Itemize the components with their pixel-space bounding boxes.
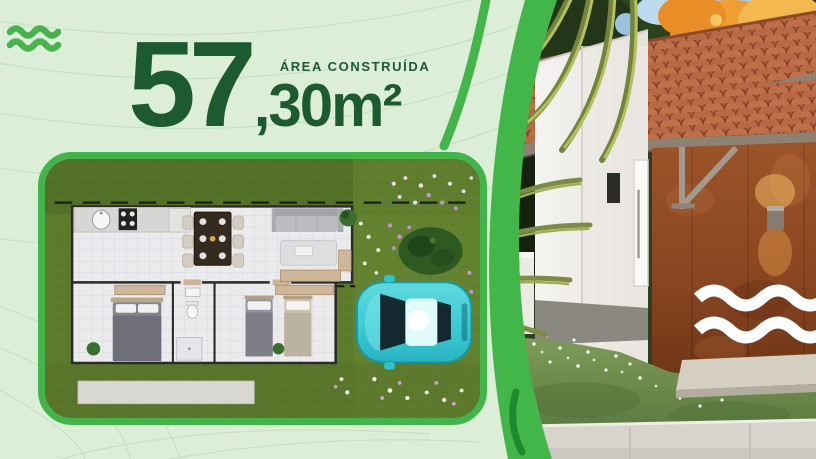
- kitchen: [74, 207, 190, 232]
- floor-plan: [45, 159, 480, 418]
- plant: [340, 209, 357, 226]
- garden-bush: [399, 227, 463, 274]
- rust-wall: [652, 142, 816, 386]
- car-top-view: [357, 275, 471, 370]
- area-decimal-unit: ,30m²: [254, 78, 431, 133]
- built-area-headline: 57 ÁREA CONSTRUÍDA ,30m²: [128, 28, 430, 140]
- white-fence: [492, 252, 534, 334]
- marketing-banner: 57 ÁREA CONSTRUÍDA ,30m²: [0, 0, 816, 459]
- area-detail: ÁREA CONSTRUÍDA ,30m²: [254, 28, 431, 133]
- stove: [119, 208, 137, 230]
- house-photo: [430, 0, 816, 459]
- plant: [87, 342, 101, 355]
- paved-step: [676, 354, 816, 398]
- door-threshold: [184, 279, 201, 285]
- front-door: [634, 160, 648, 286]
- plant: [273, 343, 285, 354]
- dining-area: [183, 212, 244, 267]
- floorplan-card: [38, 152, 487, 425]
- sidewalk: [430, 420, 816, 459]
- double-wave-icon: [6, 22, 64, 56]
- window: [606, 172, 621, 204]
- tv-console: [280, 270, 340, 281]
- front-walkway: [78, 381, 254, 404]
- area-number: 57: [128, 28, 250, 140]
- house-render: [430, 0, 816, 459]
